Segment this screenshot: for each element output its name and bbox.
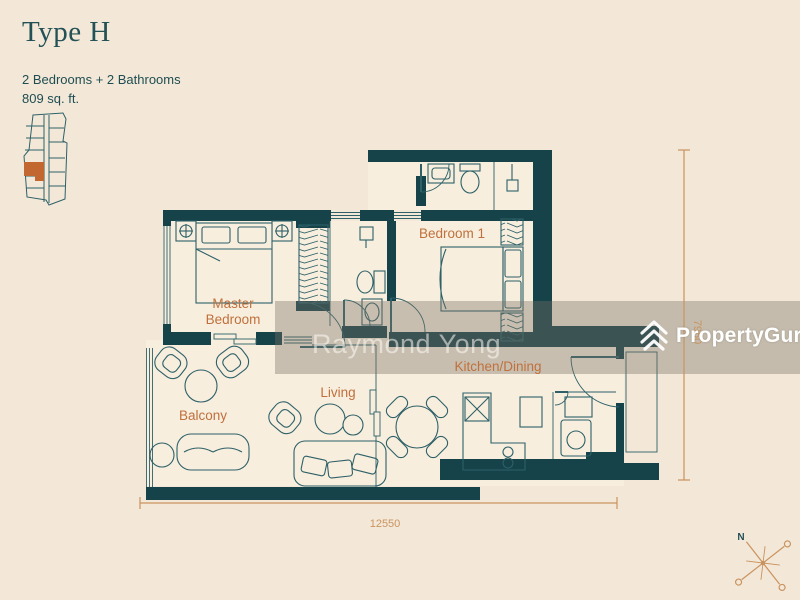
agent-watermark: Raymond Yong: [312, 329, 501, 360]
floorplan-page: Type H 2 Bedrooms + 2 Bathrooms 809 sq. …: [0, 0, 800, 600]
propertyguru-chevron-icon: [637, 318, 671, 354]
room-label-balcony: Balcony: [179, 408, 227, 423]
propertyguru-brand-text: PropertyGuru: [676, 324, 800, 348]
dimension-width-label: 12550: [370, 518, 401, 530]
room-label-master-line1: Master: [212, 296, 254, 311]
propertyguru-watermark: PropertyGuru: [637, 318, 800, 354]
room-label-living: Living: [320, 385, 355, 400]
room-label-bedroom1: Bedroom 1: [419, 226, 485, 241]
annotation-layer: Master Bedroom Bedroom 1 Living Kitchen/…: [0, 0, 800, 600]
room-label-master-line2: Bedroom: [206, 312, 261, 327]
room-label-kitchen-dining: Kitchen/Dining: [454, 359, 541, 374]
compass-north-label: N: [737, 532, 744, 543]
compass-rose: N: [720, 521, 800, 600]
